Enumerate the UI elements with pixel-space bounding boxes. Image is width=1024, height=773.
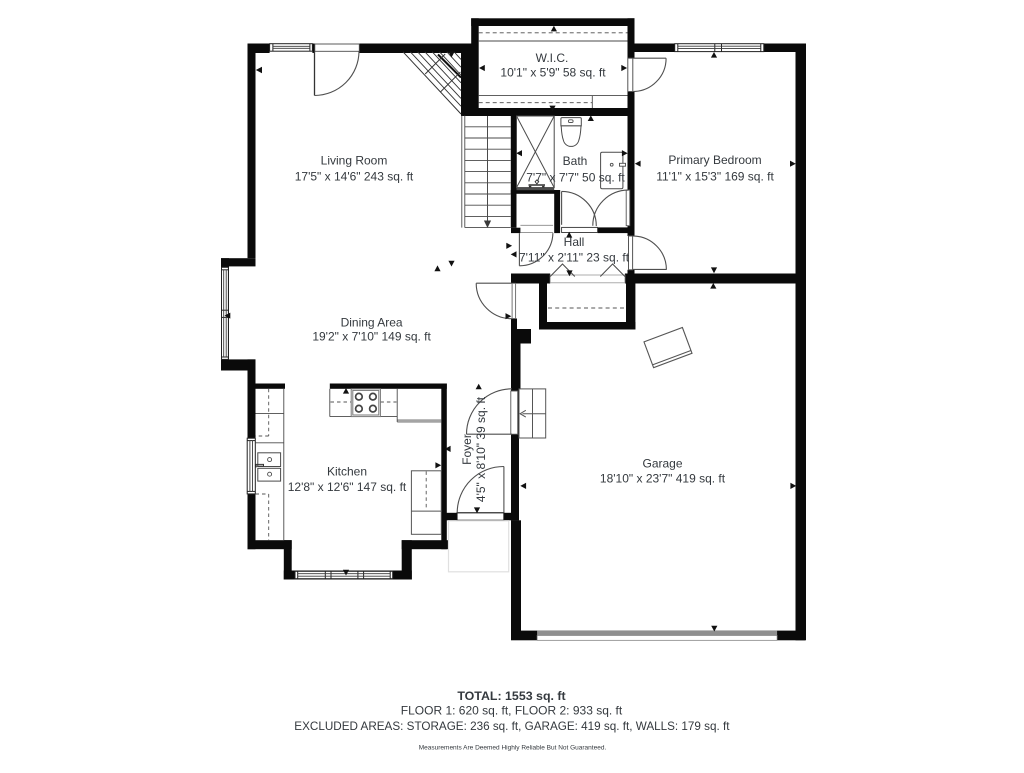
svg-text:Foyer: Foyer xyxy=(460,434,474,465)
svg-text:Garage: Garage xyxy=(642,456,682,470)
svg-text:18'10" x 23'7" 419 sq. ft: 18'10" x 23'7" 419 sq. ft xyxy=(600,472,726,486)
svg-text:Measurements Are Deemed Highly: Measurements Are Deemed Highly Reliable … xyxy=(419,745,607,752)
svg-text:FLOOR 1: 620 sq. ft, FLOOR 2:: FLOOR 1: 620 sq. ft, FLOOR 2: 933 sq. ft xyxy=(401,704,623,718)
svg-text:W.I.C.: W.I.C. xyxy=(536,51,569,65)
svg-text:TOTAL: 1553 sq. ft: TOTAL: 1553 sq. ft xyxy=(457,689,565,703)
svg-text:Kitchen: Kitchen xyxy=(327,464,367,478)
svg-text:12'8" x 12'6" 147 sq. ft: 12'8" x 12'6" 147 sq. ft xyxy=(288,480,407,494)
svg-text:Primary Bedroom: Primary Bedroom xyxy=(668,153,761,167)
svg-text:4'5" x 8'10" 39 sq. ft: 4'5" x 8'10" 39 sq. ft xyxy=(474,396,488,502)
svg-text:Living Room: Living Room xyxy=(321,153,388,167)
svg-text:19'2" x 7'10" 149 sq. ft: 19'2" x 7'10" 149 sq. ft xyxy=(312,329,431,343)
svg-text:Bath: Bath xyxy=(563,154,588,168)
svg-text:7'11" x 2'11" 23 sq. ft: 7'11" x 2'11" 23 sq. ft xyxy=(519,250,630,264)
svg-text:17'5" x 14'6" 243 sq. ft: 17'5" x 14'6" 243 sq. ft xyxy=(295,169,414,183)
svg-text:EXCLUDED AREAS: STORAGE: 236 s: EXCLUDED AREAS: STORAGE: 236 sq. ft, GAR… xyxy=(294,720,730,733)
svg-text:7'7" x 7'7" 50 sq. ft: 7'7" x 7'7" 50 sq. ft xyxy=(526,170,625,184)
svg-text:10'1" x 5'9" 58 sq. ft: 10'1" x 5'9" 58 sq. ft xyxy=(500,65,606,79)
svg-text:11'1" x 15'3" 169 sq. ft: 11'1" x 15'3" 169 sq. ft xyxy=(656,169,774,183)
svg-text:Dining Area: Dining Area xyxy=(341,315,403,329)
